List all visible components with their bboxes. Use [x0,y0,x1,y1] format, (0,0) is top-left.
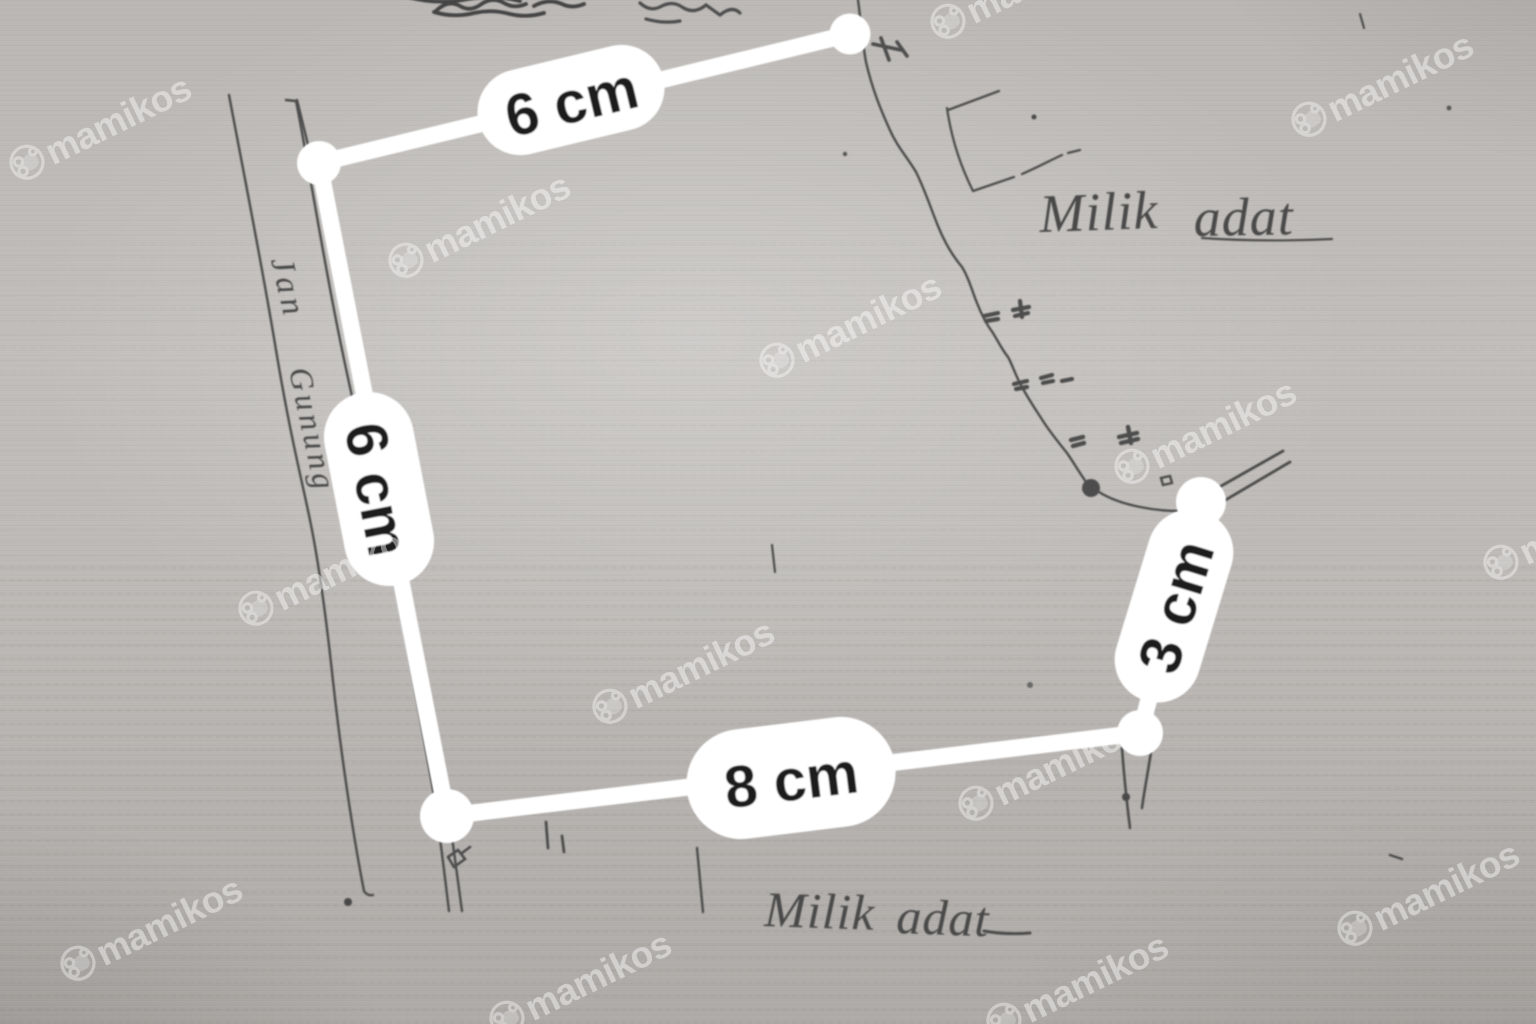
svg-text:Milik: Milik [763,881,876,941]
svg-text:mamikos: mamikos [1144,371,1303,477]
svg-text:mamikos: mamikos [1016,925,1175,1024]
svg-text:mamikos: mamikos [519,923,678,1024]
svg-text:mamikos: mamikos [1367,833,1526,939]
svg-text:mamikos: mamikos [90,868,249,974]
svg-text:mamikos: mamikos [960,0,1119,32]
svg-text:mamikos: mamikos [39,67,198,173]
svg-text:mamikos: mamikos [418,165,577,271]
svg-text:adat: adat [896,888,991,947]
svg-text:mamikos: mamikos [622,611,781,717]
svg-text:mamikos: mamikos [789,265,948,371]
svg-text:Milik: Milik [1037,180,1159,244]
svg-text:mamikos: mamikos [1321,24,1480,130]
